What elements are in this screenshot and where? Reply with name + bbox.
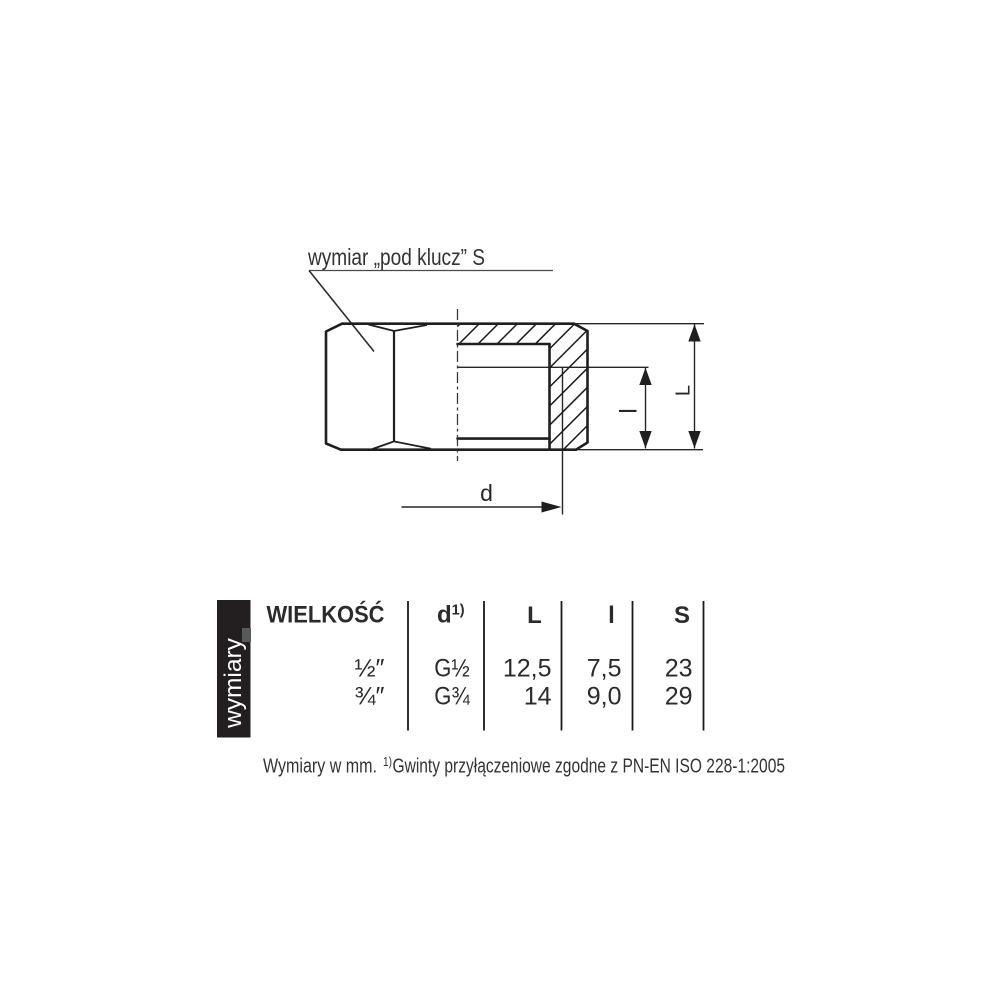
- svg-text:7,5: 7,5: [587, 655, 622, 683]
- svg-text:S: S: [674, 602, 690, 629]
- svg-text:l: l: [608, 602, 615, 629]
- svg-text:G¾: G¾: [434, 683, 471, 711]
- svg-text:G½: G½: [434, 655, 470, 683]
- svg-text:WIELKOŚĆ: WIELKOŚĆ: [267, 601, 385, 629]
- svg-text:d1): d1): [437, 602, 465, 629]
- svg-text:d: d: [480, 480, 493, 506]
- svg-text:l: l: [616, 408, 643, 413]
- svg-text:1): 1): [383, 755, 392, 769]
- svg-text:wymiar „pod klucz” S: wymiar „pod klucz” S: [307, 244, 485, 270]
- svg-text:L: L: [527, 602, 542, 629]
- svg-text:½″: ½″: [355, 655, 385, 683]
- svg-text:wymiary: wymiary: [220, 637, 247, 729]
- svg-text:23: 23: [665, 655, 693, 683]
- svg-text:14: 14: [524, 683, 552, 711]
- svg-text:Gwinty przyłączeniowe zgodne z: Gwinty przyłączeniowe zgodne z PN-EN ISO…: [393, 756, 786, 778]
- svg-text:12,5: 12,5: [503, 655, 552, 683]
- svg-text:¾″: ¾″: [355, 683, 385, 711]
- svg-text:L: L: [673, 385, 695, 396]
- svg-text:29: 29: [665, 683, 693, 711]
- svg-text:Wymiary w mm.: Wymiary w mm.: [263, 756, 377, 778]
- svg-text:9,0: 9,0: [587, 683, 622, 711]
